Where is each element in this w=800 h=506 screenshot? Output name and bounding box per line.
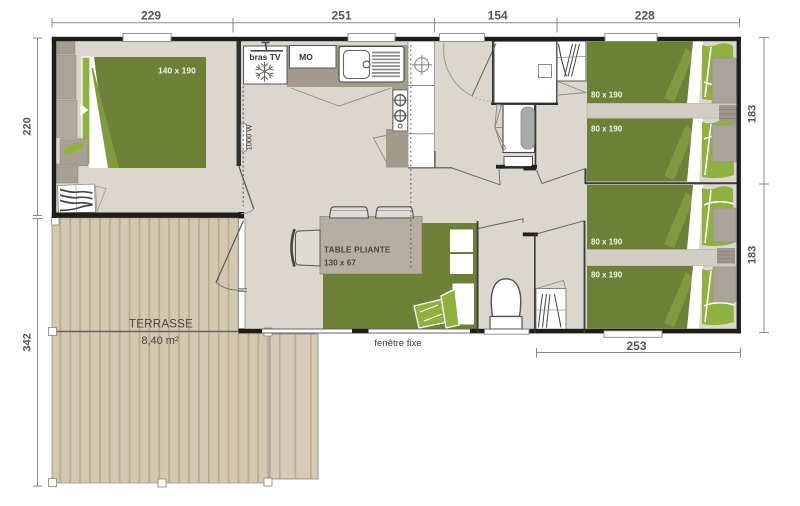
svg-text:TABLE PLIANTE: TABLE PLIANTE bbox=[324, 246, 391, 255]
svg-text:342: 342 bbox=[22, 333, 34, 351]
svg-text:TERRASSE: TERRASSE bbox=[129, 318, 193, 331]
svg-text:8,40 m²: 8,40 m² bbox=[141, 335, 179, 347]
svg-text:220: 220 bbox=[22, 117, 34, 135]
svg-text:183: 183 bbox=[747, 105, 759, 123]
svg-text:229: 229 bbox=[141, 9, 161, 23]
svg-text:MO: MO bbox=[299, 52, 313, 62]
svg-text:154: 154 bbox=[488, 9, 508, 23]
svg-text:228: 228 bbox=[635, 9, 655, 23]
svg-text:130 x 67: 130 x 67 bbox=[324, 259, 356, 268]
svg-text:80 x 190: 80 x 190 bbox=[591, 271, 623, 280]
svg-text:1000 W: 1000 W bbox=[245, 124, 254, 151]
svg-text:183: 183 bbox=[747, 246, 759, 264]
svg-text:80 x 190: 80 x 190 bbox=[591, 91, 623, 100]
svg-text:bras TV: bras TV bbox=[249, 52, 281, 62]
svg-text:253: 253 bbox=[626, 339, 646, 353]
svg-text:80 x 190: 80 x 190 bbox=[591, 125, 623, 134]
svg-text:80 x 190: 80 x 190 bbox=[591, 238, 623, 247]
svg-text:251: 251 bbox=[331, 9, 351, 23]
svg-text:140 x 190: 140 x 190 bbox=[158, 66, 196, 76]
svg-text:fenêtre fixe: fenêtre fixe bbox=[374, 338, 421, 349]
